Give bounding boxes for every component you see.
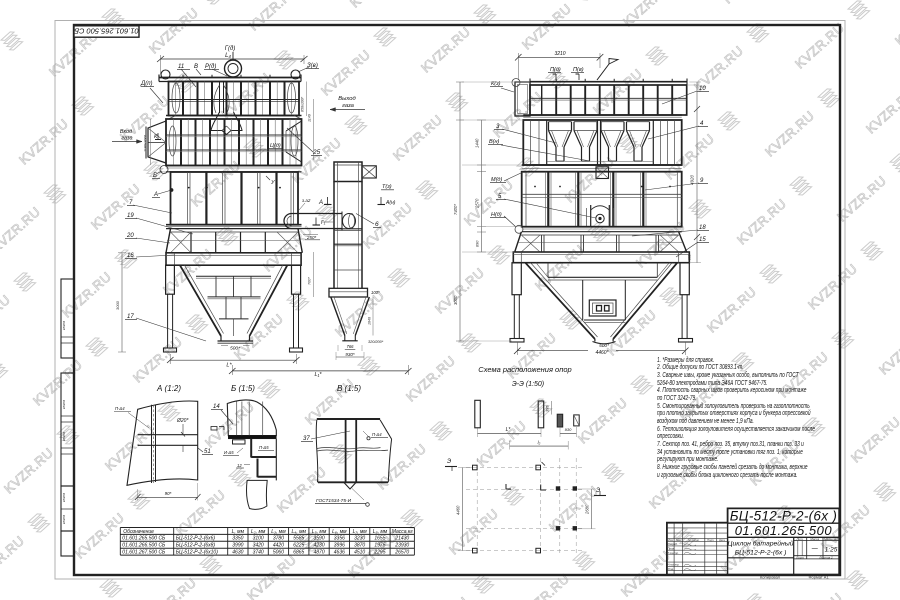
svg-text:Схема расположения опор: Схема расположения опор xyxy=(478,365,571,374)
svg-text:з.а2: з.а2 xyxy=(301,198,311,203)
svg-text:Б (1:5): Б (1:5) xyxy=(231,384,255,393)
svg-text:100*: 100* xyxy=(371,290,380,295)
svg-text:01.601.265.500 СБ: 01.601.265.500 СБ xyxy=(74,27,139,36)
svg-text:l₂: l₂ xyxy=(538,440,541,445)
svg-text:7: 7 xyxy=(129,200,133,206)
svg-text:3350: 3350 xyxy=(232,536,243,542)
svg-text:01.601.265.500: 01.601.265.500 xyxy=(735,523,833,538)
svg-text:17: 17 xyxy=(127,314,134,320)
svg-text:37: 37 xyxy=(303,436,310,442)
svg-text:L₅, мм: L₅, мм xyxy=(312,529,327,535)
svg-text:3230: 3230 xyxy=(354,536,365,542)
svg-text:А: А xyxy=(153,192,158,198)
svg-text:Масштаб: Масштаб xyxy=(824,537,838,541)
svg-text:А(н): А(н) xyxy=(385,200,396,206)
svg-text:БЦ-512-Р-2-(6х8): БЦ-512-Р-2-(6х8) xyxy=(176,543,216,549)
svg-text:Листов 2: Листов 2 xyxy=(818,555,833,559)
svg-text:395: 395 xyxy=(546,405,550,412)
svg-text:320/200*: 320/200* xyxy=(368,340,384,344)
svg-text:21430: 21430 xyxy=(394,536,409,542)
svg-text:В (1:5): В (1:5) xyxy=(337,384,361,393)
svg-text:5060: 5060 xyxy=(273,550,284,556)
svg-text:4920: 4920 xyxy=(690,174,695,185)
svg-text:4420: 4420 xyxy=(273,543,284,549)
svg-text:5: 5 xyxy=(498,194,502,200)
svg-text:П(д): П(д) xyxy=(550,67,561,73)
svg-text:3356: 3356 xyxy=(334,536,345,542)
svg-text:БЦ-512-Р-2-(6х10): БЦ-512-Р-2-(6х10) xyxy=(176,550,219,556)
svg-text:6225: 6225 xyxy=(293,543,304,549)
svg-text:L₈, мм: L₈, мм xyxy=(373,529,388,535)
svg-text:3420: 3420 xyxy=(253,543,264,549)
svg-text:2570: 2570 xyxy=(475,198,480,209)
svg-text:1655: 1655 xyxy=(374,536,385,542)
svg-text:250*: 250* xyxy=(306,235,317,240)
svg-text:Ц(д): Ц(д) xyxy=(270,143,281,149)
svg-text:01.601.265.500 СБ: 01.601.265.500 СБ xyxy=(122,536,166,542)
svg-text:4: 4 xyxy=(700,121,704,127)
svg-text:766: 766 xyxy=(347,344,355,349)
svg-text:П(в): П(в) xyxy=(573,67,584,73)
svg-text:В(н): В(н) xyxy=(489,139,500,145)
svg-text:102: 102 xyxy=(688,254,692,260)
svg-text:Подп.: Подп. xyxy=(707,538,714,542)
svg-text:кгхта: кгхта xyxy=(62,321,66,330)
svg-text:L₆, мм: L₆, мм xyxy=(332,529,347,535)
svg-text:19: 19 xyxy=(127,213,134,219)
svg-text:20: 20 xyxy=(126,233,134,239)
svg-text:Выход: Выход xyxy=(338,96,356,102)
svg-text:Т(з): Т(з) xyxy=(382,184,392,190)
svg-text:газа: газа xyxy=(342,103,355,109)
svg-text:БЦ-512-Р-2-(6х ): БЦ-512-Р-2-(6х ) xyxy=(730,509,837,524)
svg-text:3100: 3100 xyxy=(253,536,264,542)
svg-text:10: 10 xyxy=(699,86,706,92)
svg-text:L₁*: L₁* xyxy=(315,372,323,378)
svg-text:Дата: Дата xyxy=(719,538,725,542)
svg-text:4230: 4230 xyxy=(313,543,324,549)
svg-text:Э: Э xyxy=(596,488,600,494)
svg-text:500*: 500* xyxy=(230,346,240,352)
svg-text:Копировал: Копировал xyxy=(760,574,781,579)
svg-text:1140: 1140 xyxy=(308,114,312,122)
svg-text:П-Δ5: П-Δ5 xyxy=(259,445,269,450)
svg-text:Лит.: Лит. xyxy=(795,537,803,541)
svg-text:3210: 3210 xyxy=(554,51,565,57)
svg-text:кгхта: кгхта xyxy=(62,432,66,441)
svg-text:3740: 3740 xyxy=(253,550,264,556)
svg-text:L₄, мм: L₄, мм xyxy=(292,529,307,535)
svg-text:L*: L* xyxy=(226,363,232,369)
svg-text:6: 6 xyxy=(375,221,379,228)
svg-text:Э-Э (1:50): Э-Э (1:50) xyxy=(512,381,544,388)
svg-text:А (1:2): А (1:2) xyxy=(156,384,181,393)
svg-text:5585: 5585 xyxy=(293,536,304,542)
svg-text:М(д): М(д) xyxy=(491,177,502,183)
svg-text:3780: 3780 xyxy=(273,536,284,542)
svg-text:—: — xyxy=(811,547,819,553)
svg-text:L₃, мм: L₃, мм xyxy=(271,529,286,535)
svg-text:4510: 4510 xyxy=(354,550,365,556)
svg-text:01.601.267.500 СБ: 01.601.267.500 СБ xyxy=(122,550,166,556)
svg-text:3990: 3990 xyxy=(232,543,243,549)
svg-text:И-Δ5: И-Δ5 xyxy=(224,450,234,455)
svg-text:3: 3 xyxy=(496,124,500,130)
svg-text:1180х300*: 1180х300* xyxy=(144,134,148,152)
svg-text:БЦ-512-Р-2-(6х6): БЦ-512-Р-2-(6х6) xyxy=(176,536,216,542)
svg-text:кгхта: кгхта xyxy=(62,515,66,524)
svg-text:850х300*: 850х300* xyxy=(301,96,305,112)
svg-text:Э: Э xyxy=(447,459,451,465)
svg-text:Утв.: Утв. xyxy=(668,567,675,571)
svg-text:Формат А1: Формат А1 xyxy=(808,574,829,579)
svg-text:Н(д): Н(д) xyxy=(491,212,502,218)
svg-text:12: 12 xyxy=(237,463,242,468)
svg-text:L*: L* xyxy=(506,427,512,433)
svg-text:01.601.266.500 СБ: 01.601.266.500 СБ xyxy=(122,543,166,549)
svg-text:Масса,кг: Масса,кг xyxy=(392,529,414,535)
svg-text:L₄: L₄ xyxy=(225,53,231,59)
svg-text:4630: 4630 xyxy=(232,550,243,556)
svg-text:У: У xyxy=(270,180,275,186)
svg-text:Обозначение: Обозначение xyxy=(123,529,154,535)
svg-text:З(в): З(в) xyxy=(307,63,318,69)
svg-text:П-Δ4: П-Δ4 xyxy=(115,406,125,411)
svg-text:930: 930 xyxy=(565,427,572,432)
svg-text:Лист: Лист xyxy=(795,555,804,559)
svg-text:890: 890 xyxy=(476,240,480,247)
svg-text:L, мм: L, мм xyxy=(232,529,245,535)
svg-text:6865: 6865 xyxy=(293,550,304,556)
svg-text:Вход: Вход xyxy=(120,129,132,135)
svg-text:Т.контр.: Т.контр. xyxy=(668,551,680,555)
svg-text:Г(д): Г(д) xyxy=(225,46,236,52)
svg-text:700*: 700* xyxy=(308,277,312,285)
svg-text:Ø20*: Ø20* xyxy=(176,418,189,424)
svg-text:14: 14 xyxy=(213,404,220,410)
svg-text:23930: 23930 xyxy=(394,543,409,549)
svg-text:3590: 3590 xyxy=(313,536,324,542)
svg-text:3996: 3996 xyxy=(334,543,345,549)
svg-text:4460: 4460 xyxy=(456,505,461,515)
svg-text:А: А xyxy=(318,200,323,206)
svg-text:кгхта: кгхта xyxy=(62,493,66,502)
svg-text:3870: 3870 xyxy=(354,543,365,549)
svg-text:4870: 4870 xyxy=(313,550,324,556)
svg-text:3000: 3000 xyxy=(115,300,120,310)
svg-text:L₂, мм: L₂, мм xyxy=(251,529,266,535)
svg-text:930*: 930* xyxy=(345,352,355,357)
svg-text:500*: 500* xyxy=(599,343,609,349)
svg-text:90*: 90* xyxy=(165,491,172,496)
svg-text:№ докум.: № докум. xyxy=(688,539,700,542)
svg-text:1:25: 1:25 xyxy=(825,547,838,554)
svg-text:9: 9 xyxy=(700,178,704,184)
svg-text:3000: 3000 xyxy=(453,295,458,305)
svg-text:1975: 1975 xyxy=(374,543,385,549)
svg-text:26570: 26570 xyxy=(394,550,409,556)
svg-text:2680: 2680 xyxy=(585,504,590,515)
svg-text:Д(п): Д(п) xyxy=(140,81,153,87)
svg-text:51: 51 xyxy=(204,449,211,455)
svg-text:Масса: Масса xyxy=(810,537,819,541)
svg-text:БЦ-512-Р-2-(6х ): БЦ-512-Р-2-(6х ) xyxy=(735,550,787,557)
svg-text:7400*: 7400* xyxy=(453,204,458,215)
svg-text:1040: 1040 xyxy=(368,317,372,325)
svg-text:15: 15 xyxy=(699,237,706,243)
svg-text:Циклон батарейный: Циклон батарейный xyxy=(728,540,794,548)
svg-text:кгхта: кгхта xyxy=(62,400,66,409)
svg-text:18: 18 xyxy=(699,225,706,231)
svg-text:Г₁: Г₁ xyxy=(321,220,326,226)
svg-text:П-Δ4: П-Δ4 xyxy=(372,432,382,437)
svg-text:1440: 1440 xyxy=(475,138,480,148)
svg-text:16: 16 xyxy=(127,253,134,259)
svg-text:L₇, мм: L₇, мм xyxy=(353,529,368,535)
svg-text:2295: 2295 xyxy=(373,550,385,556)
svg-text:Р(д): Р(д) xyxy=(205,64,216,70)
svg-text:4460*: 4460* xyxy=(595,350,609,356)
svg-text:газа: газа xyxy=(121,136,132,142)
svg-text:4636: 4636 xyxy=(334,550,345,556)
